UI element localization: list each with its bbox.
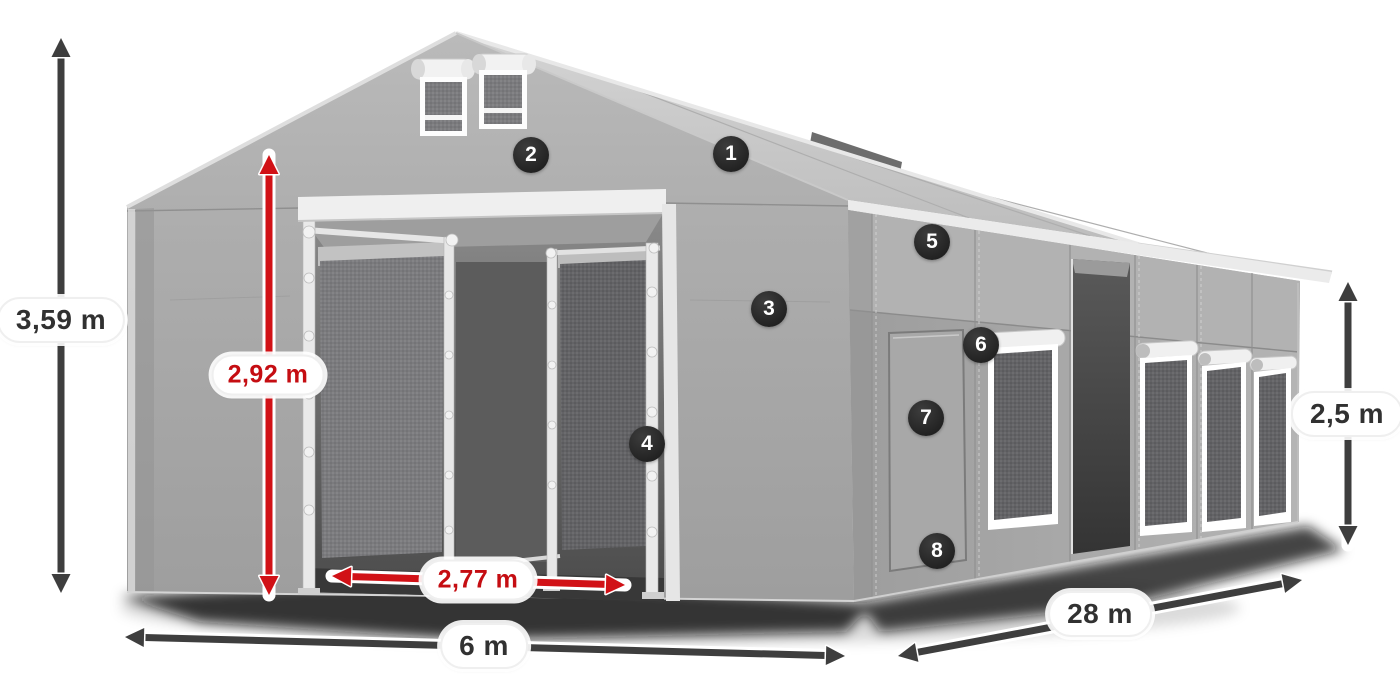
mesh-curtain-1 bbox=[320, 256, 444, 558]
dimension-label-side-height: 2,5 m bbox=[1291, 391, 1400, 437]
feature-marker-3: 3 bbox=[751, 291, 787, 327]
gable-vent-right bbox=[472, 54, 536, 129]
dimension-label-total-height: 3,59 m bbox=[0, 297, 125, 343]
tent-illustration bbox=[0, 0, 1400, 700]
side-window-2 bbox=[1136, 340, 1199, 536]
dimension-label-side-length: 28 m bbox=[1048, 591, 1152, 637]
front-entrance-opening bbox=[298, 189, 680, 601]
front-corner-pole bbox=[128, 209, 135, 593]
feature-marker-4: 4 bbox=[629, 426, 665, 462]
feature-marker-1: 1 bbox=[713, 136, 749, 172]
tent-dimensions-diagram: 3,59 m2,92 m2,77 m6 m28 m2,5 m12345678 bbox=[0, 0, 1400, 700]
side-sliding-door-opening bbox=[1072, 259, 1130, 554]
portal-2-left-post bbox=[547, 249, 557, 589]
side-window-4 bbox=[1250, 356, 1298, 526]
dimension-label-entrance-height: 2,92 m bbox=[212, 355, 325, 396]
feature-marker-8: 8 bbox=[919, 533, 955, 569]
gable-vent-left bbox=[411, 59, 475, 136]
dimension-label-front-width: 6 m bbox=[440, 623, 528, 669]
dimension-label-entrance-width: 2,77 m bbox=[422, 560, 535, 601]
feature-marker-2: 2 bbox=[513, 137, 549, 173]
side-window-1 bbox=[983, 329, 1066, 530]
feature-marker-6: 6 bbox=[963, 327, 999, 363]
side-window-3 bbox=[1198, 349, 1253, 532]
feature-marker-5: 5 bbox=[914, 224, 950, 260]
mesh-curtain-2 bbox=[560, 260, 648, 550]
feature-marker-7: 7 bbox=[908, 400, 944, 436]
